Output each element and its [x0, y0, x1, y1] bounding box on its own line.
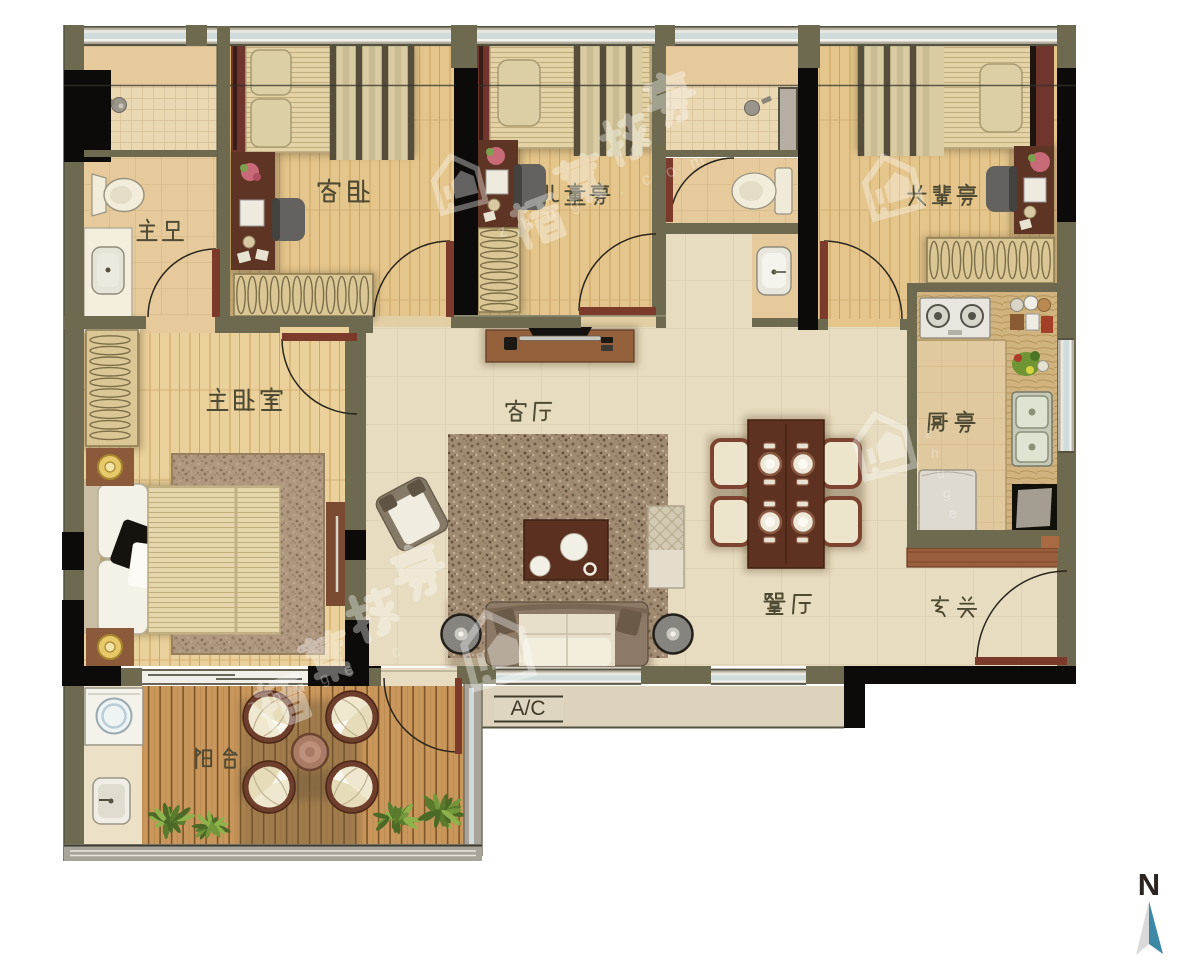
svg-text:A/C: A/C — [510, 697, 545, 720]
svg-text:u: u — [937, 465, 945, 481]
svg-text:z: z — [925, 425, 932, 441]
svg-text:h: h — [931, 445, 939, 461]
svg-text:g: g — [943, 485, 951, 501]
svg-text:N: N — [1138, 867, 1160, 902]
svg-text:e: e — [949, 505, 957, 521]
